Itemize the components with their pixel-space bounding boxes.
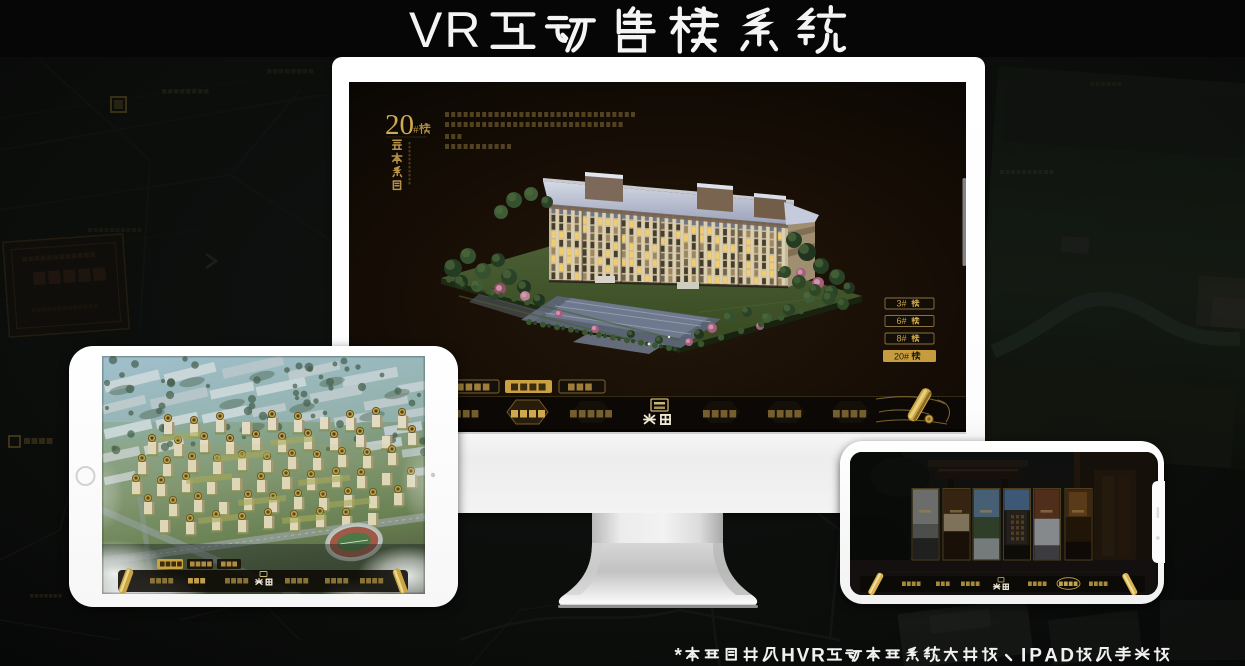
svg-text:20: 20 bbox=[385, 109, 414, 141]
svg-text:R: R bbox=[811, 646, 825, 666]
svg-text:3#: 3# bbox=[896, 299, 906, 309]
svg-text:D: D bbox=[1060, 646, 1074, 666]
svg-text:20#: 20# bbox=[894, 352, 909, 362]
svg-text:V: V bbox=[797, 646, 810, 666]
svg-text:P: P bbox=[1029, 646, 1042, 666]
svg-text:H: H bbox=[781, 646, 795, 666]
svg-text:*: * bbox=[674, 646, 682, 666]
svg-text:#: # bbox=[413, 124, 419, 136]
svg-text:8#: 8# bbox=[896, 334, 906, 344]
svg-text:I: I bbox=[1021, 646, 1026, 666]
svg-text:A: A bbox=[1044, 646, 1058, 666]
svg-text:VR: VR bbox=[409, 2, 482, 58]
svg-text:6#: 6# bbox=[896, 316, 906, 326]
